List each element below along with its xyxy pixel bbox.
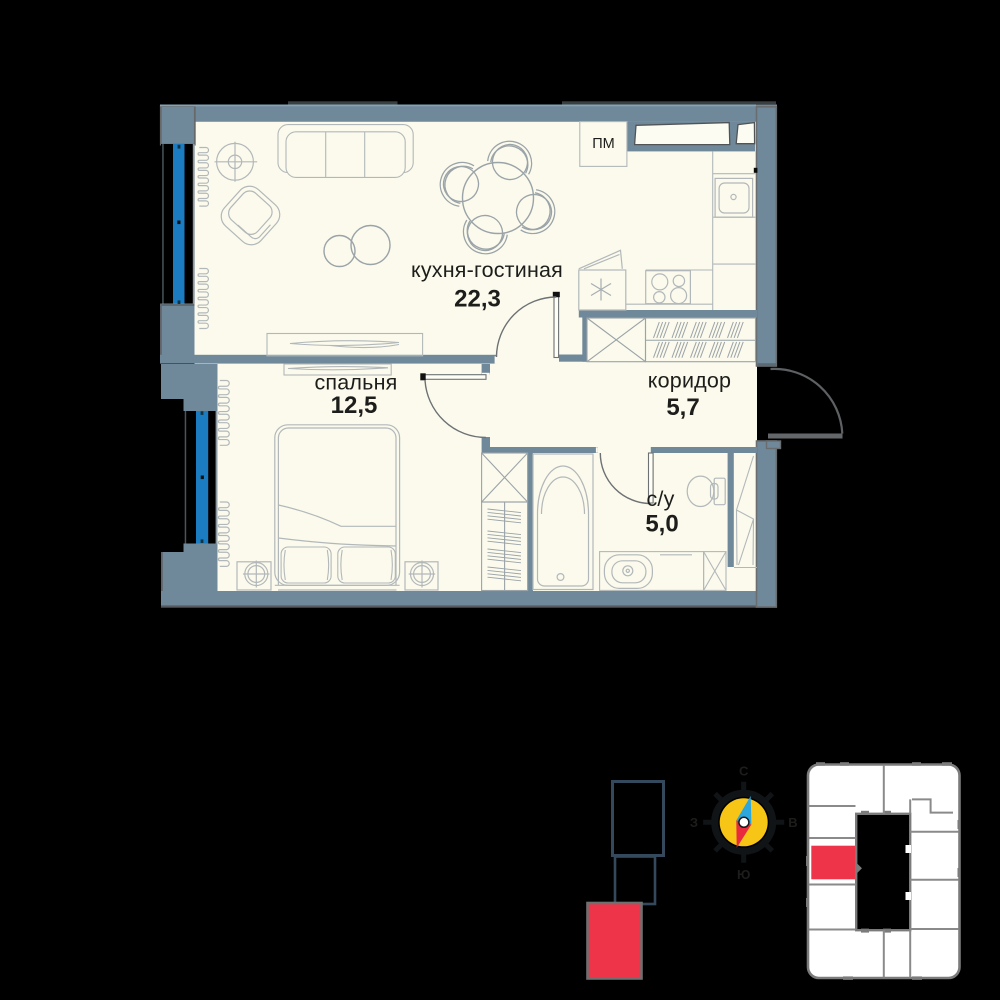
svg-text:спальня: спальня [314, 371, 397, 395]
svg-text:С: С [739, 764, 749, 779]
svg-text:ПМ: ПМ [592, 136, 615, 152]
svg-text:Ю: Ю [737, 867, 750, 882]
svg-text:с/у: с/у [646, 487, 674, 511]
svg-text:З: З [690, 815, 698, 830]
svg-text:5,7: 5,7 [666, 394, 699, 421]
svg-text:5,0: 5,0 [645, 511, 678, 538]
svg-text:коридор: коридор [648, 369, 731, 393]
svg-text:12,5: 12,5 [331, 392, 378, 419]
svg-text:В: В [788, 815, 797, 830]
svg-text:кухня-гостиная: кухня-гостиная [411, 258, 563, 282]
svg-text:22,3: 22,3 [454, 286, 501, 313]
